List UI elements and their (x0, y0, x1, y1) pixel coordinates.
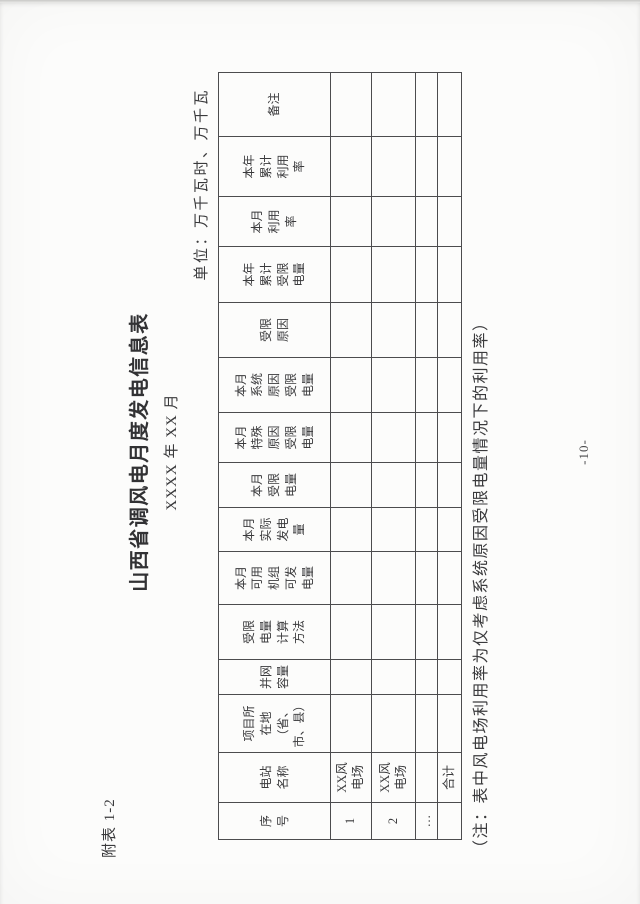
table-cell (331, 695, 372, 753)
footnote: （注：表中风电场利用率为仅考虑系统原因受限电量情况下的利用率） (467, 313, 491, 856)
table-cell (438, 508, 462, 552)
table-cell (416, 137, 438, 197)
table-cell: … (416, 803, 438, 840)
table-cell (331, 197, 372, 247)
table-cell (331, 137, 372, 197)
table-cell (438, 137, 462, 197)
page-number: -10- (576, 0, 592, 904)
table-cell (331, 463, 372, 508)
header-cell: 本月 特殊 原因 受限 电量 (219, 413, 331, 463)
header-cell: 本月 实际 发电 量 (219, 508, 331, 552)
table-cell (416, 605, 438, 660)
table-cell (416, 508, 438, 552)
scan-page: 附表 1-2 山西省调风电月度发电信息表 XXXX 年 XX 月 单位：万千瓦时… (0, 0, 640, 904)
info-table: 序 号 电站 名称 项目所 在地 （省、 市、县） 并网 容量 受限 电量 计算… (218, 72, 462, 840)
table-cell (372, 137, 416, 197)
table-cell (438, 197, 462, 247)
table-cell (438, 552, 462, 605)
document-sheet: 附表 1-2 山西省调风电月度发电信息表 XXXX 年 XX 月 单位：万千瓦时… (0, 0, 640, 904)
header-cell: 受限 电量 计算 方法 (219, 605, 331, 660)
header-cell: 本月 利用 率 (219, 197, 331, 247)
table-cell (416, 303, 438, 358)
header-cell: 并网 容量 (219, 660, 331, 695)
table-cell (438, 803, 462, 840)
table-cell: XX风 电场 (331, 753, 372, 803)
table-cell (438, 605, 462, 660)
table-cell (416, 247, 438, 303)
table-cell: 1 (331, 803, 372, 840)
table-cell (416, 73, 438, 137)
table-cell (372, 303, 416, 358)
table-cell: 2 (372, 803, 416, 840)
table-cell (372, 197, 416, 247)
page-title: 山西省调风电月度发电信息表 (123, 0, 152, 904)
table-cell (438, 463, 462, 508)
header-cell: 受限 原因 (219, 303, 331, 358)
table-cell (438, 358, 462, 413)
table-cell (331, 552, 372, 605)
table-cell (372, 508, 416, 552)
table-cell (416, 463, 438, 508)
table-cell (416, 358, 438, 413)
header-cell: 本年 累计 受限 电量 (219, 247, 331, 303)
table-row: 2 XX风 电场 (372, 73, 416, 840)
table-cell (438, 73, 462, 137)
header-cell: 序 号 (219, 803, 331, 840)
table-cell (331, 660, 372, 695)
header-cell: 备注 (219, 73, 331, 137)
table-cell (438, 695, 462, 753)
table-cell (416, 695, 438, 753)
table-cell (416, 197, 438, 247)
table-cell (372, 552, 416, 605)
unit-label: 单位：万千瓦时、万千瓦 (190, 88, 211, 281)
table-cell (372, 605, 416, 660)
table-cell (372, 695, 416, 753)
table-row-total: 合计 (438, 73, 462, 840)
table-cell (416, 413, 438, 463)
table-row: … (416, 73, 438, 840)
table-cell: 合计 (438, 753, 462, 803)
table-cell (331, 413, 372, 463)
header-cell: 本月 系统 原因 受限 电量 (219, 358, 331, 413)
table-cell (438, 413, 462, 463)
table-cell (331, 508, 372, 552)
table-cell (438, 660, 462, 695)
table-cell (331, 247, 372, 303)
table-cell (331, 303, 372, 358)
table-cell (438, 303, 462, 358)
page-subtitle: XXXX 年 XX 月 (160, 0, 181, 904)
table-cell: XX风 电场 (372, 753, 416, 803)
header-row: 序 号 电站 名称 项目所 在地 （省、 市、县） 并网 容量 受限 电量 计算… (219, 73, 331, 840)
table-cell (372, 413, 416, 463)
table-cell (331, 605, 372, 660)
attachment-label: 附表 1-2 (98, 798, 119, 858)
header-cell: 本月 可用 机组 可发 电量 (219, 552, 331, 605)
table-cell (372, 463, 416, 508)
table-cell (416, 753, 438, 803)
table-cell (372, 247, 416, 303)
header-cell: 电站 名称 (219, 753, 331, 803)
header-cell: 项目所 在地 （省、 市、县） (219, 695, 331, 753)
table-cell (372, 73, 416, 137)
table-cell (372, 358, 416, 413)
table-cell (372, 660, 416, 695)
table-row: 1 XX风 电场 (331, 73, 372, 840)
table-cell (331, 73, 372, 137)
table-cell (416, 552, 438, 605)
table-cell (331, 358, 372, 413)
table-cell (416, 660, 438, 695)
header-cell: 本年 累计 利用 率 (219, 137, 331, 197)
header-cell: 本月 受限 电量 (219, 463, 331, 508)
table-cell (438, 247, 462, 303)
